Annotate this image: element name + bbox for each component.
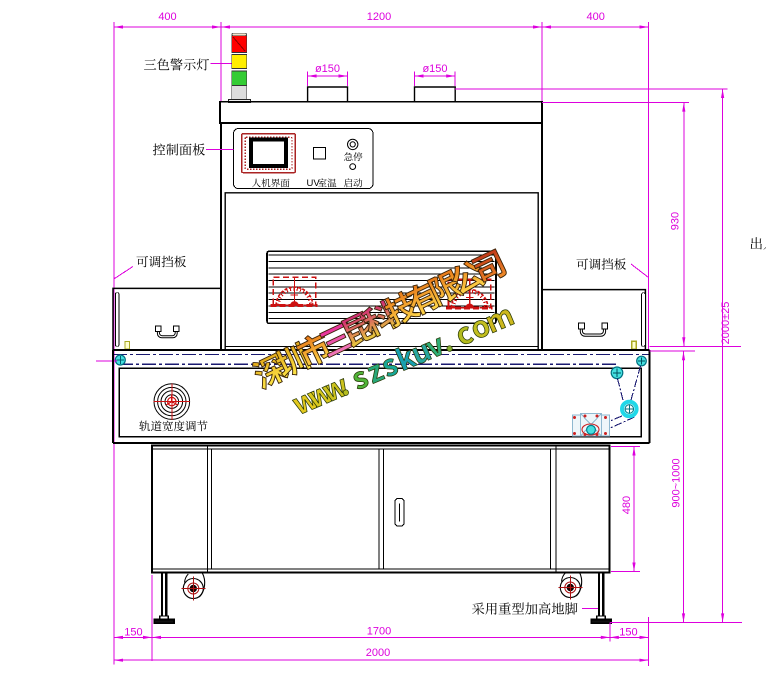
svg-text:2000: 2000	[366, 647, 390, 659]
svg-text:150: 150	[619, 627, 637, 639]
svg-text:480: 480	[621, 496, 633, 514]
svg-text:900~1000: 900~1000	[671, 458, 683, 507]
svg-text:1700: 1700	[367, 626, 391, 638]
svg-text:ø150: ø150	[315, 63, 340, 75]
svg-text:400: 400	[158, 11, 176, 23]
svg-text:UV: UV	[307, 178, 321, 189]
svg-text:400: 400	[587, 11, 605, 23]
svg-text:2000±25: 2000±25	[720, 302, 732, 345]
svg-text:ø150: ø150	[422, 63, 447, 75]
svg-text:930: 930	[670, 212, 682, 230]
svg-text:1200: 1200	[367, 11, 391, 23]
svg-text:150: 150	[124, 627, 142, 639]
